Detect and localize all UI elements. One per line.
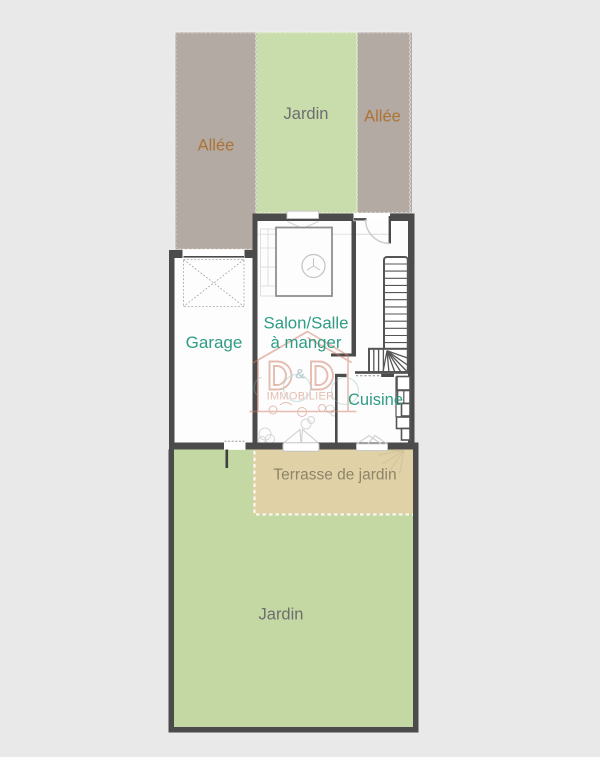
svg-text:Allée: Allée <box>198 137 235 155</box>
svg-text:Allée: Allée <box>364 108 401 126</box>
svg-text:Salon/Salle: Salon/Salle <box>264 314 349 333</box>
svg-text:à manger: à manger <box>271 333 342 352</box>
svg-text:Garage: Garage <box>186 333 243 352</box>
svg-text:Terrasse de jardin: Terrasse de jardin <box>273 467 396 484</box>
svg-text:Cuisine: Cuisine <box>348 391 403 409</box>
svg-text:Jardin: Jardin <box>284 105 329 123</box>
svg-text:&: & <box>295 366 305 382</box>
svg-text:Jardin: Jardin <box>259 606 304 624</box>
